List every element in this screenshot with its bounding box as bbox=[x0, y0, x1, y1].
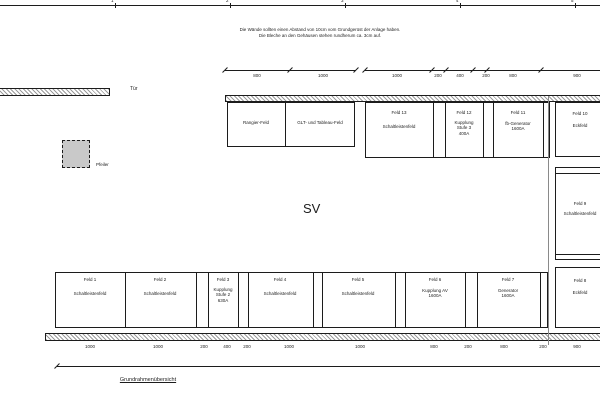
field-line: 1600A bbox=[422, 293, 448, 299]
sheet-grid-tick bbox=[230, 3, 231, 8]
sheet-grid-tick bbox=[345, 3, 346, 8]
dim-label: 200 bbox=[482, 73, 490, 78]
sheet-grid-label: 3 bbox=[341, 0, 344, 3]
field-line: Schaltleistenfeld bbox=[264, 291, 297, 297]
sheet-grid-label: 4 bbox=[456, 0, 459, 3]
dim-label: 1000 bbox=[85, 344, 95, 349]
cabinet-divider bbox=[285, 102, 286, 147]
pillar bbox=[62, 140, 90, 168]
cabinet-divider bbox=[483, 102, 484, 158]
sheet-border-line bbox=[0, 5, 600, 6]
field-line: 1600A bbox=[505, 126, 531, 132]
dim-label: 200 bbox=[200, 344, 208, 349]
field-line: Schaltleistenfeld bbox=[144, 291, 177, 297]
cabinet-feld-8 bbox=[555, 267, 600, 328]
cabinet-divider bbox=[395, 272, 396, 328]
dim-label: 200 bbox=[243, 344, 251, 349]
wall-top bbox=[225, 95, 600, 102]
field-3: Feld 3 Kupplung Stufe 2 630A bbox=[213, 277, 232, 303]
sheet-grid-label: 1 bbox=[111, 0, 114, 3]
dim-label: 400 bbox=[223, 344, 231, 349]
field-title: Feld 13 bbox=[383, 110, 416, 116]
dim-label: 900 bbox=[573, 73, 581, 78]
field-9: Feld 9 Schaltleistenfeld bbox=[564, 201, 597, 216]
sheet-grid-tick bbox=[115, 3, 116, 8]
field-line: Schaltleistenfeld bbox=[383, 124, 416, 130]
cabinet-divider bbox=[196, 272, 197, 328]
cabinet-divider bbox=[433, 102, 434, 158]
field-title: Feld 2 bbox=[144, 277, 177, 283]
field-line: Stufe 3 bbox=[454, 125, 473, 131]
cabinet-divider bbox=[322, 272, 323, 328]
field-13: Feld 13 Schaltleistenfeld bbox=[383, 110, 416, 129]
dim-label: 900 bbox=[573, 344, 581, 349]
drawing-title: Grundrahmenübersicht bbox=[120, 377, 176, 383]
dim-label: 200 bbox=[434, 73, 442, 78]
drawing-canvas: 1 2 3 4 5 Die Wände sollten einen Abstan… bbox=[0, 0, 600, 400]
cabinet-divider bbox=[493, 102, 494, 158]
field-line: Schaltleistenfeld bbox=[74, 291, 107, 297]
field-5: Feld 5 Schaltleistenfeld bbox=[342, 277, 375, 296]
field-6: Feld 6 Kupplung AV 1600A bbox=[422, 277, 448, 299]
dim-label: 1000 bbox=[153, 344, 163, 349]
field-line: 400A bbox=[454, 131, 473, 137]
field-line: Schaltleistenfeld bbox=[342, 291, 375, 297]
door-label: Tür bbox=[130, 86, 138, 92]
field-title: Feld 3 bbox=[213, 277, 232, 283]
sheet-grid-tick bbox=[460, 3, 461, 8]
dim-label: 200 bbox=[464, 344, 472, 349]
cabinet-divider bbox=[540, 272, 541, 328]
field-line: Schaltleistenfeld bbox=[564, 211, 597, 217]
dim-label: 800 bbox=[500, 344, 508, 349]
field-title: Rangier-Feld bbox=[243, 120, 269, 126]
dim-label: 800 bbox=[430, 344, 438, 349]
dim-label: 1000 bbox=[392, 73, 402, 78]
sheet-grid-label: 2 bbox=[226, 0, 229, 3]
field-line: Eckfeld bbox=[573, 290, 588, 296]
cabinet-divider bbox=[125, 272, 126, 328]
wall-left bbox=[0, 88, 110, 96]
field-title: Feld 8 bbox=[573, 278, 588, 284]
field-title: Feld 7 bbox=[498, 277, 518, 283]
overall-dimension-line bbox=[57, 366, 600, 367]
field-line: 1600A bbox=[498, 293, 518, 299]
cabinet-inner-line bbox=[555, 173, 600, 174]
field-title: Feld 9 bbox=[564, 201, 597, 207]
field-rangier: Rangier-Feld bbox=[243, 120, 269, 126]
field-12: Feld 12 Kupplung Stufe 3 400A bbox=[454, 110, 473, 136]
sheet-grid-label: 5 bbox=[571, 0, 574, 3]
cabinet-divider bbox=[445, 102, 446, 158]
field-11: Feld 11 fb-Generator 1600A bbox=[505, 110, 531, 132]
field-8: Feld 8 Eckfeld bbox=[573, 278, 588, 295]
field-title: GLT- und Tableau-Feld bbox=[297, 120, 343, 126]
cabinet-divider bbox=[465, 272, 466, 328]
field-4: Feld 4 Schaltleistenfeld bbox=[264, 277, 297, 296]
field-1: Feld 1 Schaltleistenfeld bbox=[74, 277, 107, 296]
extension-line bbox=[548, 96, 549, 345]
field-title: Feld 12 bbox=[454, 110, 473, 116]
wall-distance-note-line1: Die Wände sollten einen Abstand von 10cm… bbox=[20, 27, 600, 33]
field-title: Feld 1 bbox=[74, 277, 107, 283]
field-line: Stufe 2 bbox=[213, 292, 232, 298]
cabinet-divider bbox=[238, 272, 239, 328]
dim-label: 200 bbox=[539, 344, 547, 349]
cabinet-divider bbox=[313, 272, 314, 328]
field-title: Feld 5 bbox=[342, 277, 375, 283]
pillar-label: Pfeiler bbox=[96, 162, 109, 168]
room-label: SV bbox=[303, 202, 320, 216]
dimension-line bbox=[365, 70, 600, 71]
field-7: Feld 7 Generator 1600A bbox=[498, 277, 518, 299]
field-line: 630A bbox=[213, 298, 232, 304]
field-title: Feld 6 bbox=[422, 277, 448, 283]
cabinet-divider bbox=[477, 272, 478, 328]
cabinet-divider bbox=[543, 102, 544, 158]
cabinet-divider bbox=[248, 272, 249, 328]
cabinet-divider bbox=[405, 272, 406, 328]
dim-label: 1000 bbox=[318, 73, 328, 78]
wall-bottom bbox=[45, 333, 600, 341]
cabinet-inner-line bbox=[555, 254, 600, 255]
field-10: Feld 10 Eckfeld bbox=[572, 111, 587, 128]
dim-label: 800 bbox=[509, 73, 517, 78]
dim-label: 800 bbox=[253, 73, 261, 78]
field-line: Eckfeld bbox=[572, 123, 587, 129]
dim-label: 1000 bbox=[355, 344, 365, 349]
field-glt-tableau: GLT- und Tableau-Feld bbox=[297, 120, 343, 126]
cabinet-divider bbox=[208, 272, 209, 328]
wall-distance-note-line2: Die Bleche an den Gehäusen stehen rundhe… bbox=[20, 33, 600, 39]
field-title: Feld 11 bbox=[505, 110, 531, 116]
field-title: Feld 10 bbox=[572, 111, 587, 117]
dimension-tick bbox=[353, 67, 359, 73]
dim-label: 1000 bbox=[284, 344, 294, 349]
sheet-grid-tick bbox=[575, 3, 576, 8]
field-2: Feld 2 Schaltleistenfeld bbox=[144, 277, 177, 296]
field-title: Feld 4 bbox=[264, 277, 297, 283]
dim-label: 400 bbox=[456, 73, 464, 78]
cabinet-group-bottom bbox=[55, 272, 548, 328]
